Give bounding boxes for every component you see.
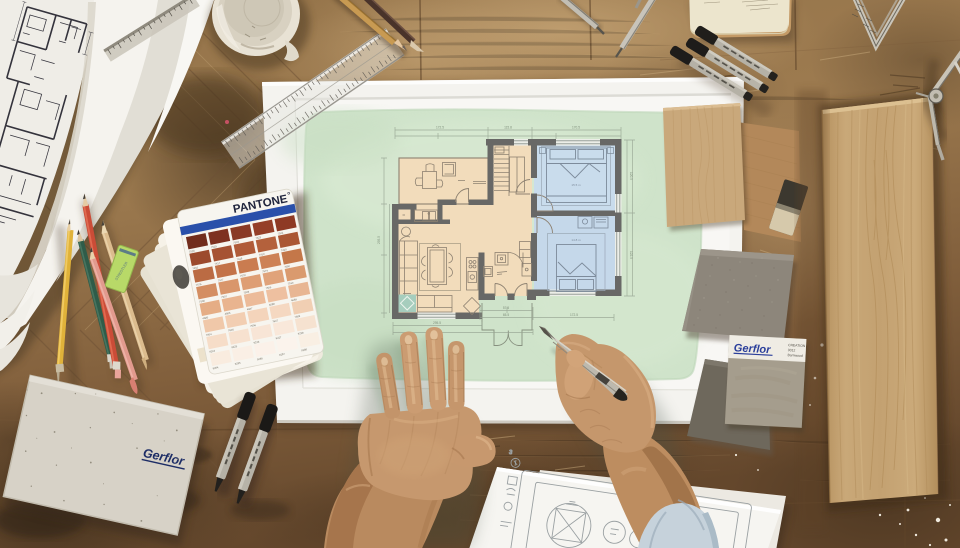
svg-text:Barnwood: Barnwood — [787, 353, 803, 358]
svg-text:122.5: 122.5 — [629, 251, 633, 259]
svg-text:172.5: 172.5 — [436, 126, 444, 130]
svg-text:295.5: 295.5 — [433, 321, 441, 325]
svg-text:120.5: 120.5 — [629, 172, 633, 180]
svg-text:15.5 m: 15.5 m — [571, 183, 581, 187]
svg-text:115.8: 115.8 — [504, 126, 512, 130]
svg-text:170.5: 170.5 — [572, 126, 580, 130]
svg-text:295.5: 295.5 — [377, 236, 381, 244]
svg-text:14.8 m: 14.8 m — [571, 238, 581, 242]
svg-text:172.5: 172.5 — [570, 313, 578, 317]
svg-text:0012: 0012 — [788, 348, 796, 352]
svg-text:57.5: 57.5 — [503, 306, 509, 310]
svg-text:65.5: 65.5 — [503, 313, 509, 317]
